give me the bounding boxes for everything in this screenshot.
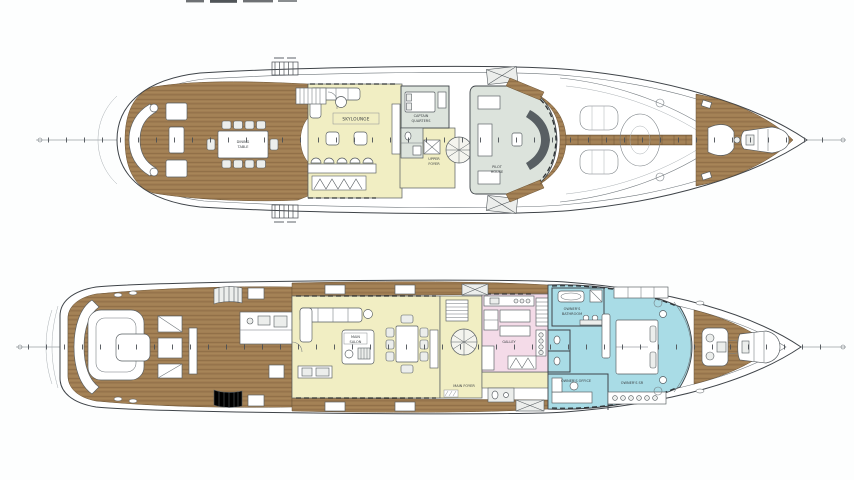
crane-post <box>734 137 740 143</box>
pillow <box>650 326 656 342</box>
office-desk <box>552 392 592 403</box>
svg-text:SALON: SALON <box>350 340 362 344</box>
svg-text:HOUSE: HOUSE <box>491 170 503 174</box>
office-chair <box>570 382 578 390</box>
tv-cabinet <box>392 104 400 154</box>
salon-credenza <box>430 330 438 368</box>
suite-corridor <box>482 372 548 388</box>
toilet <box>492 391 498 399</box>
salon-dining-table <box>396 326 418 362</box>
deck-box <box>325 402 345 411</box>
upper-foyer-label: UPPER <box>428 157 440 161</box>
nightstand <box>660 311 667 318</box>
sun-lounger <box>166 103 187 120</box>
nightstand <box>660 377 667 384</box>
toilet <box>554 336 560 344</box>
upper-aft-deck <box>125 82 308 201</box>
spiral-stair-main <box>451 329 477 355</box>
svg-text:QUARTERS: QUARTERS <box>412 119 432 123</box>
console-table <box>189 328 197 374</box>
helm-chair <box>512 133 522 146</box>
bow-seating <box>708 125 734 156</box>
captain-desk <box>438 92 446 108</box>
captain-quarters-label: CAPTAIN <box>414 114 429 118</box>
side-table <box>150 168 158 176</box>
foyer-stairs <box>446 300 468 321</box>
svg-text:BATHROOM: BATHROOM <box>562 312 582 316</box>
svg-text:FOYER: FOYER <box>428 162 440 166</box>
aft-table <box>116 334 150 361</box>
spiral-stair-upper <box>446 137 472 163</box>
bathtub <box>558 291 584 302</box>
upper-deck-plan: DINING TABLE SKYLOUNGE <box>36 58 846 222</box>
deck-plans-canvas: DINING TABLE SKYLOUNGE <box>0 0 854 480</box>
main-foyer-label: MAIN FOYER <box>453 384 475 388</box>
lamp-table <box>364 310 373 319</box>
chart-table <box>478 96 500 109</box>
deck-table <box>158 338 182 358</box>
main-salon-label: MAIN <box>351 335 360 339</box>
side-deck-hatch-top <box>462 284 488 295</box>
louver-closet <box>444 390 458 397</box>
shower <box>413 146 421 155</box>
aft-stairs-top <box>214 286 242 304</box>
pilot-house-label: PILOT <box>492 165 503 169</box>
deck-box <box>395 402 415 411</box>
armchair <box>326 132 339 145</box>
yacht-ga-drawing: DINING TABLE SKYLOUNGE <box>0 0 854 480</box>
owners-office-label: OWNER'S OFFICE <box>561 379 591 383</box>
armchair <box>354 132 367 145</box>
svg-text:TABLE: TABLE <box>237 145 249 149</box>
catwalk <box>566 135 692 145</box>
deck-locker <box>269 365 284 378</box>
galley-island <box>500 310 530 322</box>
dining-table-label: DINING <box>237 140 250 144</box>
sink <box>504 393 509 398</box>
side-deck-hatch-bottom <box>516 400 544 411</box>
owners-sr-label: OWNER'S SR <box>621 381 644 385</box>
bidet <box>554 357 560 365</box>
pillow <box>650 352 656 368</box>
crew-stairs <box>536 298 548 326</box>
stateroom-sofa <box>602 314 610 358</box>
galley-counter-left <box>482 346 494 370</box>
aft-stairs-bottom <box>214 390 242 408</box>
side-table <box>150 104 158 112</box>
round-table <box>336 97 347 108</box>
dish-rack <box>508 356 536 369</box>
main-deck-plan: MAIN SALON MAIN FOYER <box>16 280 846 414</box>
sun-lounger <box>166 160 187 177</box>
owners-bathroom-label: OWNER'S <box>564 307 581 311</box>
deck-box <box>395 285 415 294</box>
deck-box <box>325 285 345 294</box>
bar-counter <box>308 164 376 173</box>
galley-label: GALLEY <box>502 340 516 344</box>
glass-rack <box>312 176 366 190</box>
cropped-top-artifact <box>186 0 297 3</box>
deck-table <box>169 127 184 153</box>
skylounge-label: SKYLOUNGE <box>342 117 369 122</box>
